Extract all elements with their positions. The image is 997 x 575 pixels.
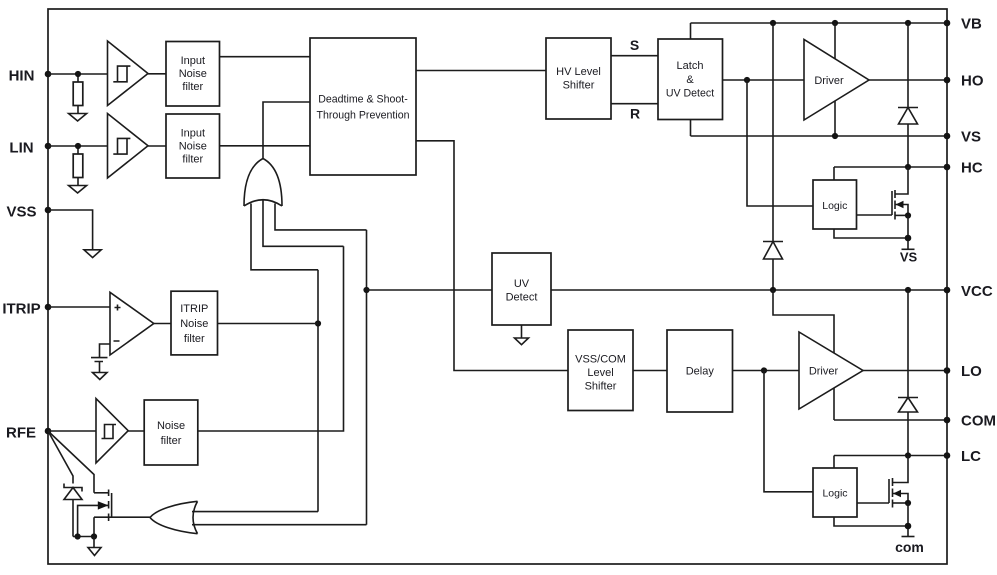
svg-text:S: S <box>630 37 639 53</box>
svg-text:Latch: Latch <box>677 60 704 72</box>
svg-text:filter: filter <box>184 333 205 345</box>
svg-text:ITRIP: ITRIP <box>2 301 40 318</box>
svg-text:Logic: Logic <box>822 200 847 212</box>
svg-text:UV Detect: UV Detect <box>666 88 714 100</box>
svg-text:COM: COM <box>961 413 996 430</box>
svg-text:Logic: Logic <box>822 488 847 500</box>
svg-text:filter: filter <box>161 435 182 447</box>
svg-text:Through Prevention: Through Prevention <box>316 110 409 122</box>
svg-text:UV: UV <box>514 278 530 290</box>
svg-text:ITRIP: ITRIP <box>180 303 208 315</box>
svg-text:HIN: HIN <box>9 68 35 85</box>
svg-text:Driver: Driver <box>809 366 839 378</box>
svg-text:Deadtime & Shoot-: Deadtime & Shoot- <box>318 94 408 106</box>
svg-text:com: com <box>895 539 924 555</box>
svg-text:VCC: VCC <box>961 283 993 300</box>
svg-text:Noise: Noise <box>179 141 207 153</box>
svg-text:HC: HC <box>961 160 983 177</box>
svg-text:Shifter: Shifter <box>563 80 595 92</box>
svg-text:Level: Level <box>587 367 613 379</box>
svg-text:R: R <box>630 106 640 122</box>
svg-text:&: & <box>686 74 694 86</box>
svg-text:VSS: VSS <box>6 204 36 221</box>
svg-text:VS: VS <box>961 129 981 146</box>
svg-text:Detect: Detect <box>506 292 538 304</box>
svg-text:VB: VB <box>961 16 982 33</box>
svg-text:RFE: RFE <box>6 425 36 442</box>
svg-text:VS: VS <box>900 250 918 265</box>
svg-text:Driver: Driver <box>814 75 844 87</box>
svg-text:HO: HO <box>961 73 984 90</box>
svg-text:Noise: Noise <box>157 420 185 432</box>
svg-text:Input: Input <box>181 55 205 67</box>
svg-text:LIN: LIN <box>9 140 33 157</box>
svg-text:LO: LO <box>961 363 982 380</box>
svg-text:Shifter: Shifter <box>585 381 617 393</box>
svg-text:Input: Input <box>181 128 205 140</box>
svg-text:filter: filter <box>182 81 203 93</box>
svg-text:Noise: Noise <box>179 68 207 80</box>
svg-text:Delay: Delay <box>686 366 715 378</box>
svg-text:Noise: Noise <box>180 318 208 330</box>
svg-text:LC: LC <box>961 448 981 465</box>
svg-text:HV Level: HV Level <box>556 66 601 78</box>
svg-text:VSS/COM: VSS/COM <box>575 354 626 366</box>
svg-text:filter: filter <box>182 154 203 166</box>
